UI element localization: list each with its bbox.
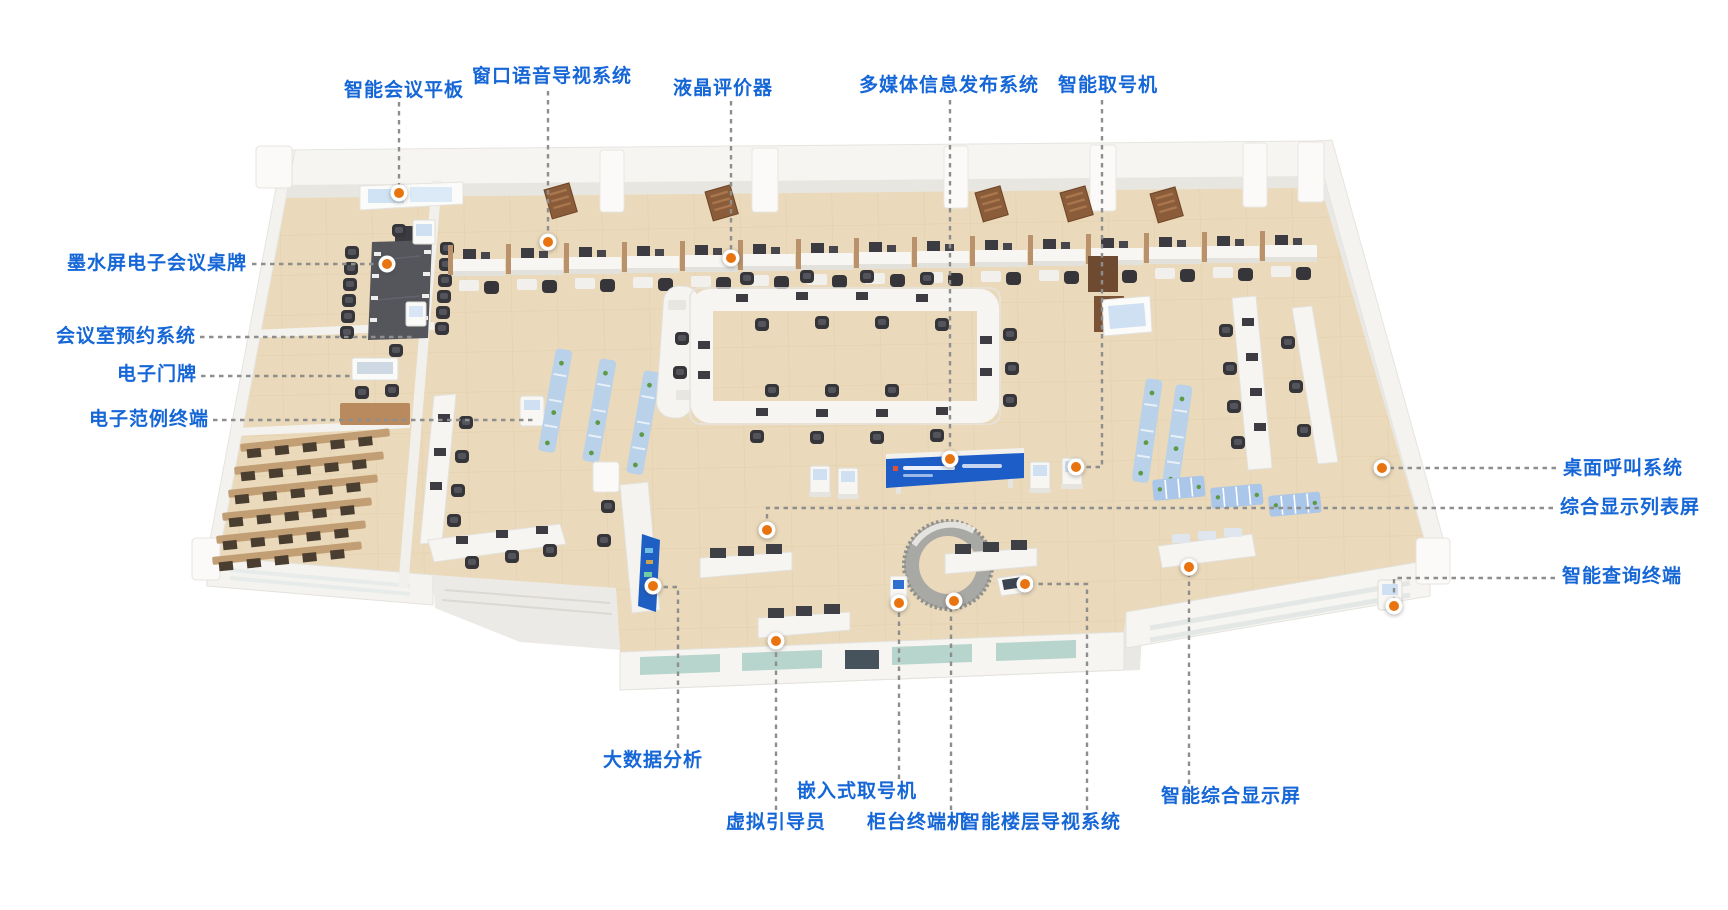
hotspot-smart-ticket-dispenser[interactable] bbox=[1068, 459, 1085, 476]
label-desktop-calling-system: 桌面呼叫系统 bbox=[1563, 459, 1683, 478]
hotspot-counter-terminal[interactable] bbox=[946, 593, 963, 610]
label-electronic-doorplate: 电子门牌 bbox=[117, 365, 197, 384]
label-comprehensive-list-display: 综合显示列表屏 bbox=[1560, 498, 1700, 517]
label-smart-meeting-panel: 智能会议平板 bbox=[344, 81, 464, 100]
hotspot-comprehensive-list-display[interactable] bbox=[759, 522, 776, 539]
floorplan-diagram: 智能会议平板 窗口语音导视系统 液晶评价器 多媒体信息发布系统 智能取号机 墨水… bbox=[0, 0, 1728, 910]
label-virtual-guide: 虚拟引导员 bbox=[726, 813, 826, 832]
label-lcd-evaluator: 液晶评价器 bbox=[673, 79, 773, 98]
label-multimedia-info-publishing: 多媒体信息发布系统 bbox=[859, 76, 1039, 95]
hotspot-smart-floor-guidance[interactable] bbox=[1017, 576, 1034, 593]
label-smart-floor-guidance: 智能楼层导视系统 bbox=[961, 813, 1121, 832]
hotspot-embedded-ticket-dispenser[interactable] bbox=[891, 595, 908, 612]
label-smart-ticket-dispenser: 智能取号机 bbox=[1058, 76, 1158, 95]
hotspot-big-data-analysis[interactable] bbox=[645, 578, 662, 595]
label-meeting-room-reservation: 会议室预约系统 bbox=[56, 327, 196, 346]
hotspot-lcd-evaluator[interactable] bbox=[723, 250, 740, 267]
hotspot-multimedia-info-publishing[interactable] bbox=[942, 451, 959, 468]
label-big-data-analysis: 大数据分析 bbox=[603, 751, 703, 770]
hotspot-virtual-guide[interactable] bbox=[768, 633, 785, 650]
hotspot-desktop-calling-system[interactable] bbox=[1374, 460, 1391, 477]
label-counter-terminal: 柜台终端机 bbox=[867, 813, 967, 832]
label-embedded-ticket-dispenser: 嵌入式取号机 bbox=[797, 782, 917, 801]
hotspot-smart-comprehensive-display[interactable] bbox=[1181, 559, 1198, 576]
hotspot-smart-meeting-panel[interactable] bbox=[391, 185, 408, 202]
label-electronic-sample-terminal: 电子范例终端 bbox=[89, 410, 209, 429]
label-eink-conference-card: 墨水屏电子会议桌牌 bbox=[67, 254, 247, 273]
hotspot-window-voice-guidance[interactable] bbox=[540, 234, 557, 251]
label-smart-comprehensive-display: 智能综合显示屏 bbox=[1161, 787, 1301, 806]
hotspot-smart-query-terminal[interactable] bbox=[1386, 598, 1403, 615]
floorplan-scene bbox=[0, 0, 1728, 910]
wood-credenza bbox=[340, 403, 410, 425]
entrance-door bbox=[845, 650, 879, 669]
hotspot-eink-conference-card[interactable] bbox=[379, 256, 396, 273]
label-window-voice-guidance: 窗口语音导视系统 bbox=[472, 67, 632, 86]
label-smart-query-terminal: 智能查询终端 bbox=[1562, 567, 1682, 586]
